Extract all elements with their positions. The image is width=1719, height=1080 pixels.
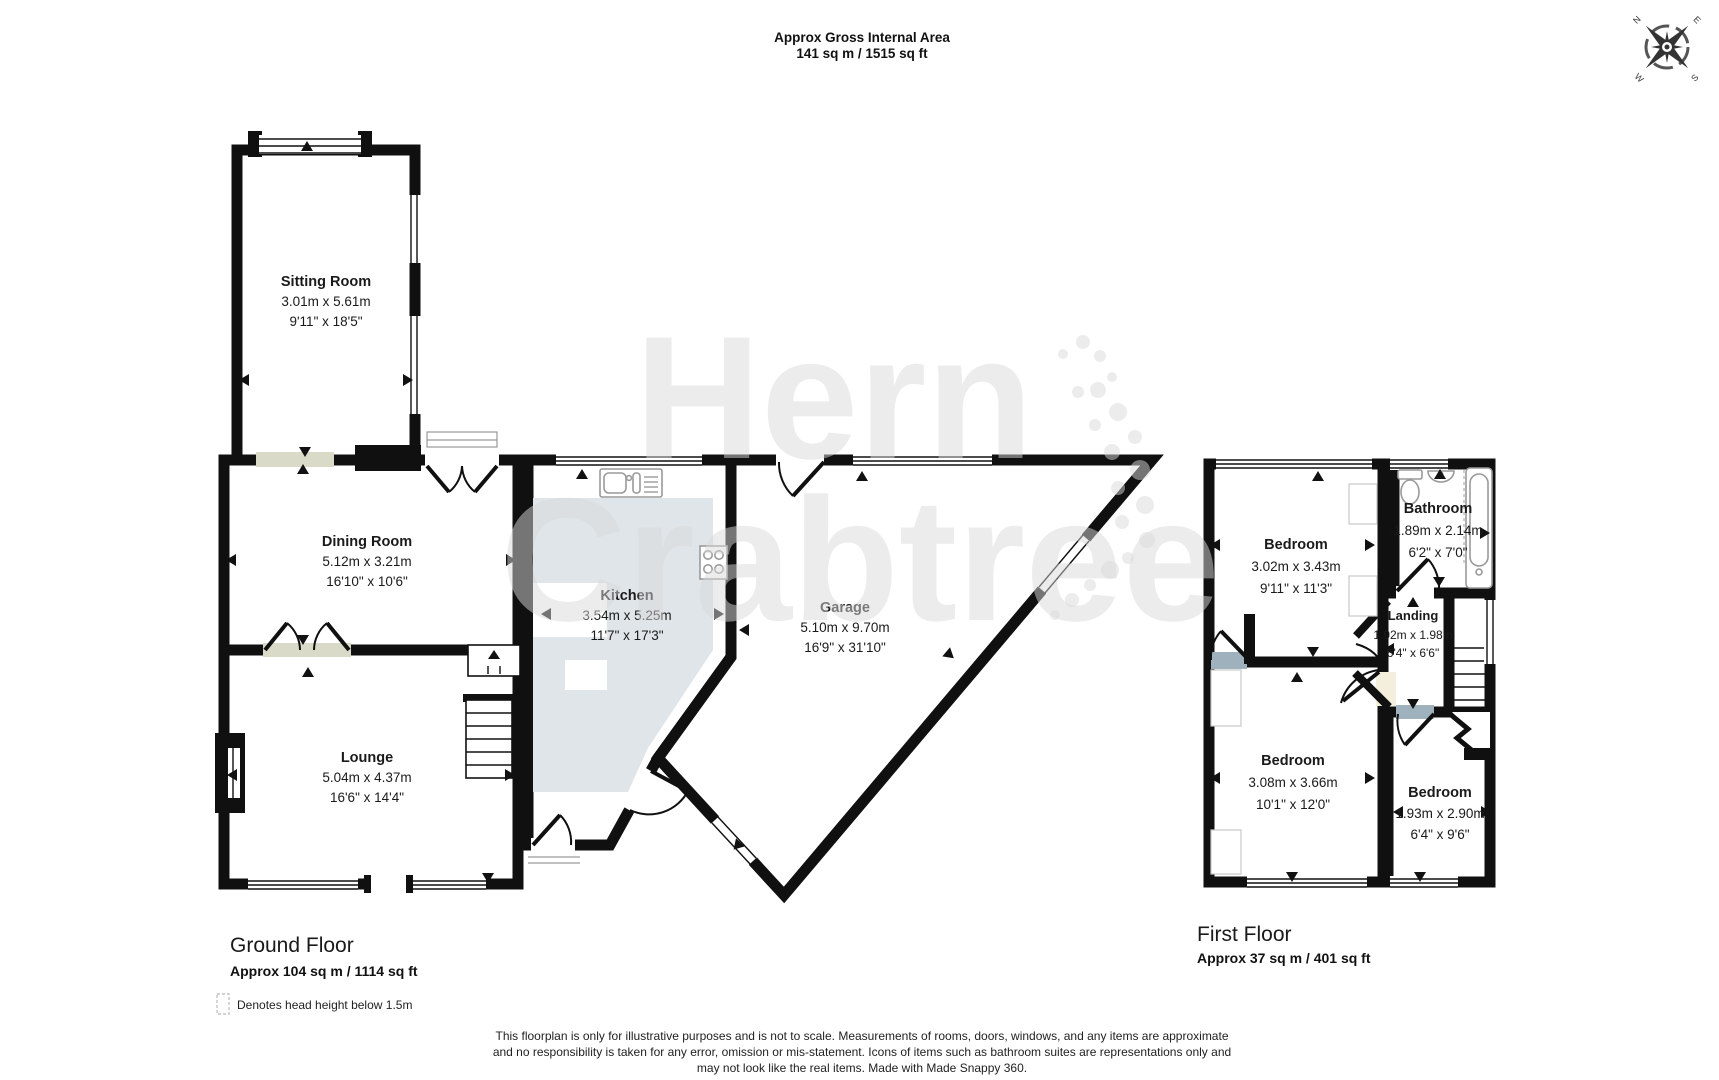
dining-french-doors <box>425 432 499 492</box>
landing-name: Landing <box>1388 608 1439 623</box>
bedroom2-metric: 3.08m x 3.66m <box>1248 775 1337 790</box>
disclaimer-line1: This floorplan is only for illustrative … <box>495 1029 1228 1043</box>
compass-s: S <box>1689 72 1700 83</box>
dining-room-name: Dining Room <box>322 534 412 550</box>
sitting-room-name: Sitting Room <box>281 274 371 290</box>
kitchen-counter-2 <box>565 660 607 690</box>
dining-room-metric: 5.12m x 3.21m <box>322 554 411 569</box>
bedroom2-name: Bedroom <box>1261 753 1325 769</box>
bedroom3-name: Bedroom <box>1408 785 1472 801</box>
first-floor-caption: First Floor Approx 37 sq m / 401 sq ft <box>1197 923 1371 966</box>
bedroom3-metric: 1.93m x 2.90m <box>1395 806 1484 821</box>
bedroom1-imperial: 9'11" x 11'3" <box>1260 581 1332 596</box>
ground-floor-caption: Ground Floor Approx 104 sq m / 1114 sq f… <box>230 934 418 979</box>
lounge-chimney <box>215 733 245 813</box>
landing-imperial: 6'4" x 6'6" <box>1387 646 1439 660</box>
watermark: Hern Crabtree <box>500 301 1220 658</box>
first-floor-area: Approx 37 sq m / 401 sq ft <box>1197 950 1371 966</box>
bedroom3-chimney <box>1450 712 1492 760</box>
opening-sitting-dining <box>256 452 334 467</box>
stairs-ground <box>463 694 515 778</box>
ground-floor-area: Approx 104 sq m / 1114 sq ft <box>230 963 418 979</box>
bedroom2-imperial: 10'1" x 12'0" <box>1256 797 1330 812</box>
lounge-bottom-windows <box>248 875 486 893</box>
lounge-name: Lounge <box>341 750 393 766</box>
stairwell <box>1449 593 1490 712</box>
bedroom1-name: Bedroom <box>1264 537 1328 553</box>
bedroom3-imperial: 6'4" x 9'6" <box>1410 827 1469 842</box>
compass-e: E <box>1691 14 1702 25</box>
first-floor-plan: Bedroom 3.02m x 3.43m 9'11" x 11'3" Bath… <box>1209 457 1497 889</box>
first-floor-title: First Floor <box>1197 923 1292 946</box>
compass-icon: N E S W <box>1631 14 1703 85</box>
legend-text: Denotes head height below 1.5m <box>237 998 412 1012</box>
stairs-first <box>1451 640 1487 710</box>
floorplan-canvas: Sitting Room 3.01m x 5.61m 9'11" x 18'5"… <box>0 0 1719 1080</box>
dining-room-imperial: 16'10" x 10'6" <box>326 574 408 589</box>
front-door <box>528 815 580 863</box>
bedroom1-metric: 3.02m x 3.43m <box>1251 559 1340 574</box>
header-title: Approx Gross Internal Area <box>774 30 950 45</box>
ground-floor-title: Ground Floor <box>230 934 354 957</box>
opening-dining-lounge <box>263 643 351 657</box>
lounge-metric: 5.04m x 4.37m <box>322 770 411 785</box>
legend-swatch <box>217 994 229 1014</box>
bathroom-metric: 1.89m x 2.14m <box>1393 523 1482 538</box>
bathroom-name: Bathroom <box>1404 501 1472 517</box>
sitting-room-metric: 3.01m x 5.61m <box>281 294 370 309</box>
disclaimer: This floorplan is only for illustrative … <box>493 1029 1231 1075</box>
disclaimer-line3: may not look like the real items. Made w… <box>697 1061 1027 1075</box>
landing-metric: 1.92m x 1.98m <box>1373 628 1452 642</box>
compass-n: N <box>1631 14 1643 26</box>
bathroom-imperial: 6'2" x 7'0" <box>1408 545 1467 560</box>
lounge-imperial: 16'6" x 14'4" <box>330 790 404 805</box>
sitting-room-imperial: 9'11" x 18'5" <box>289 314 362 329</box>
watermark-line2: Crabtree <box>500 463 1220 658</box>
header: Approx Gross Internal Area 141 sq m / 15… <box>774 30 950 61</box>
legend: Denotes head height below 1.5m <box>217 994 412 1014</box>
header-area: 141 sq m / 1515 sq ft <box>796 46 928 61</box>
bedroom3-door-gap <box>1396 705 1434 719</box>
compass-w: W <box>1633 71 1646 84</box>
sitting-bay-window <box>248 131 372 157</box>
wall-jog <box>355 445 421 471</box>
disclaimer-line2: and no responsibility is taken for any e… <box>493 1045 1231 1059</box>
toilet-icon <box>1398 470 1422 504</box>
